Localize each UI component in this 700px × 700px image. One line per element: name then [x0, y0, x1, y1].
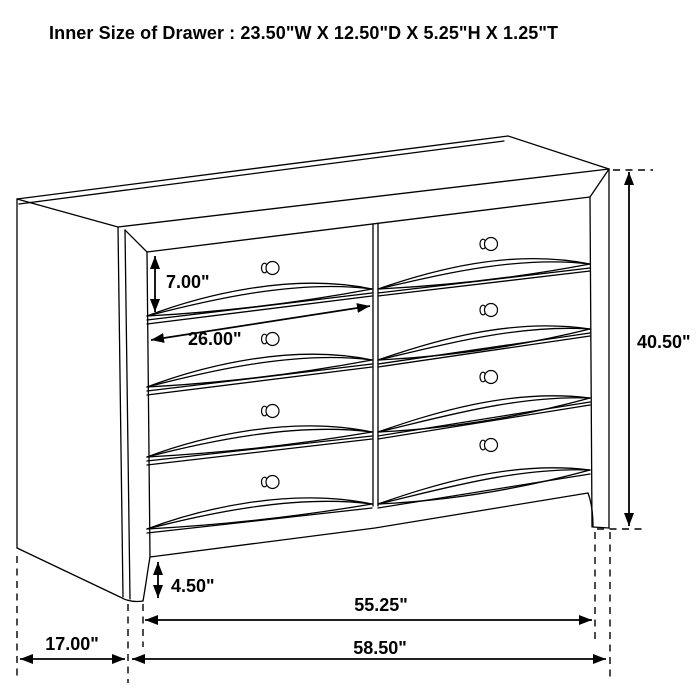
drawer-knob: [480, 439, 498, 452]
side-bottom-edge: [17, 548, 120, 597]
drawer-fronts: [147, 259, 590, 529]
diagram-page: Inner Size of Drawer : 23.50"W X 12.50"D…: [0, 0, 700, 700]
left-foot-bottom: [120, 597, 143, 602]
drawer-knob: [262, 476, 280, 489]
drawer-knob: [480, 304, 498, 317]
dim-label-total-height: 40.50": [637, 332, 691, 352]
drawer-carving: [147, 498, 372, 529]
left-bevel: [125, 230, 147, 252]
cabinet-outline: [17, 136, 609, 602]
dim-label-side-depth: 17.00": [45, 634, 99, 654]
top-front-edge: [118, 169, 609, 227]
dim-label-foot-height: 4.50": [171, 576, 215, 596]
drawer-knob: [262, 333, 280, 346]
drawer-carving: [378, 396, 590, 432]
right-foot-bottom: [593, 527, 609, 528]
drawer-knob: [480, 238, 498, 251]
face-top-edge: [147, 197, 590, 252]
dim-label-drawer-width: 26.00": [188, 329, 242, 349]
top-inner-lip: [19, 141, 504, 204]
drawer-knobs: [262, 238, 498, 489]
drawer-carving: [378, 326, 590, 360]
dim-label-drawer-height: 7.00": [166, 272, 210, 292]
left-foot-cutout: [143, 557, 150, 601]
drawer-knob: [480, 371, 498, 384]
drawer-carving: [378, 259, 590, 289]
dimension-labels: 7.00" 26.00" 40.50" 4.50" 55.25" 17.00" …: [45, 272, 690, 658]
side-top-edge: [17, 199, 118, 227]
right-bevel: [590, 169, 609, 197]
side-right-edge: [118, 227, 123, 597]
drawer-carving: [378, 468, 590, 504]
face-left-edge: [147, 252, 150, 557]
left-stile: [125, 230, 130, 599]
drawer-knob: [262, 405, 280, 418]
dresser-technical-drawing: 7.00" 26.00" 40.50" 4.50" 55.25" 17.00" …: [0, 0, 700, 700]
right-stile: [590, 197, 592, 527]
top-right-edge: [508, 136, 609, 169]
dim-label-front-width: 55.25": [354, 595, 408, 615]
dimension-arrows: [20, 172, 629, 659]
dim-arrow-drawer-width: [151, 306, 370, 340]
drawer-knob: [262, 262, 280, 275]
dim-label-total-width: 58.50": [353, 638, 407, 658]
